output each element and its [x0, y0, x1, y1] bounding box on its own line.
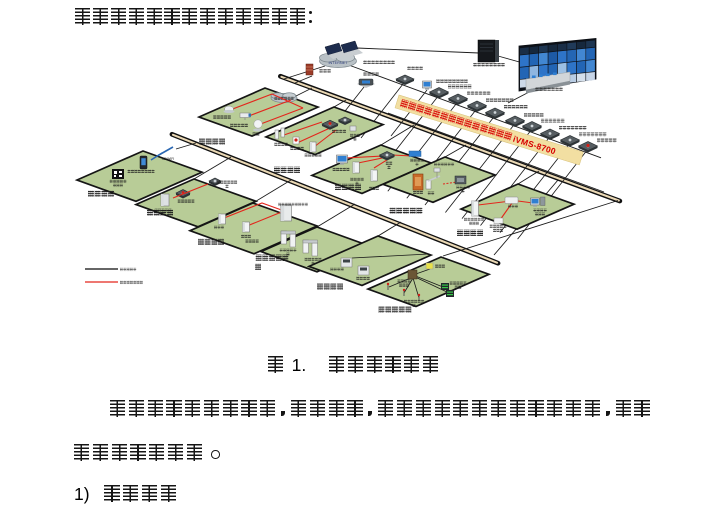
- svg-text:INTERNET: INTERNET: [329, 61, 349, 65]
- svg-text:3G/WIFI: 3G/WIFI: [162, 157, 175, 161]
